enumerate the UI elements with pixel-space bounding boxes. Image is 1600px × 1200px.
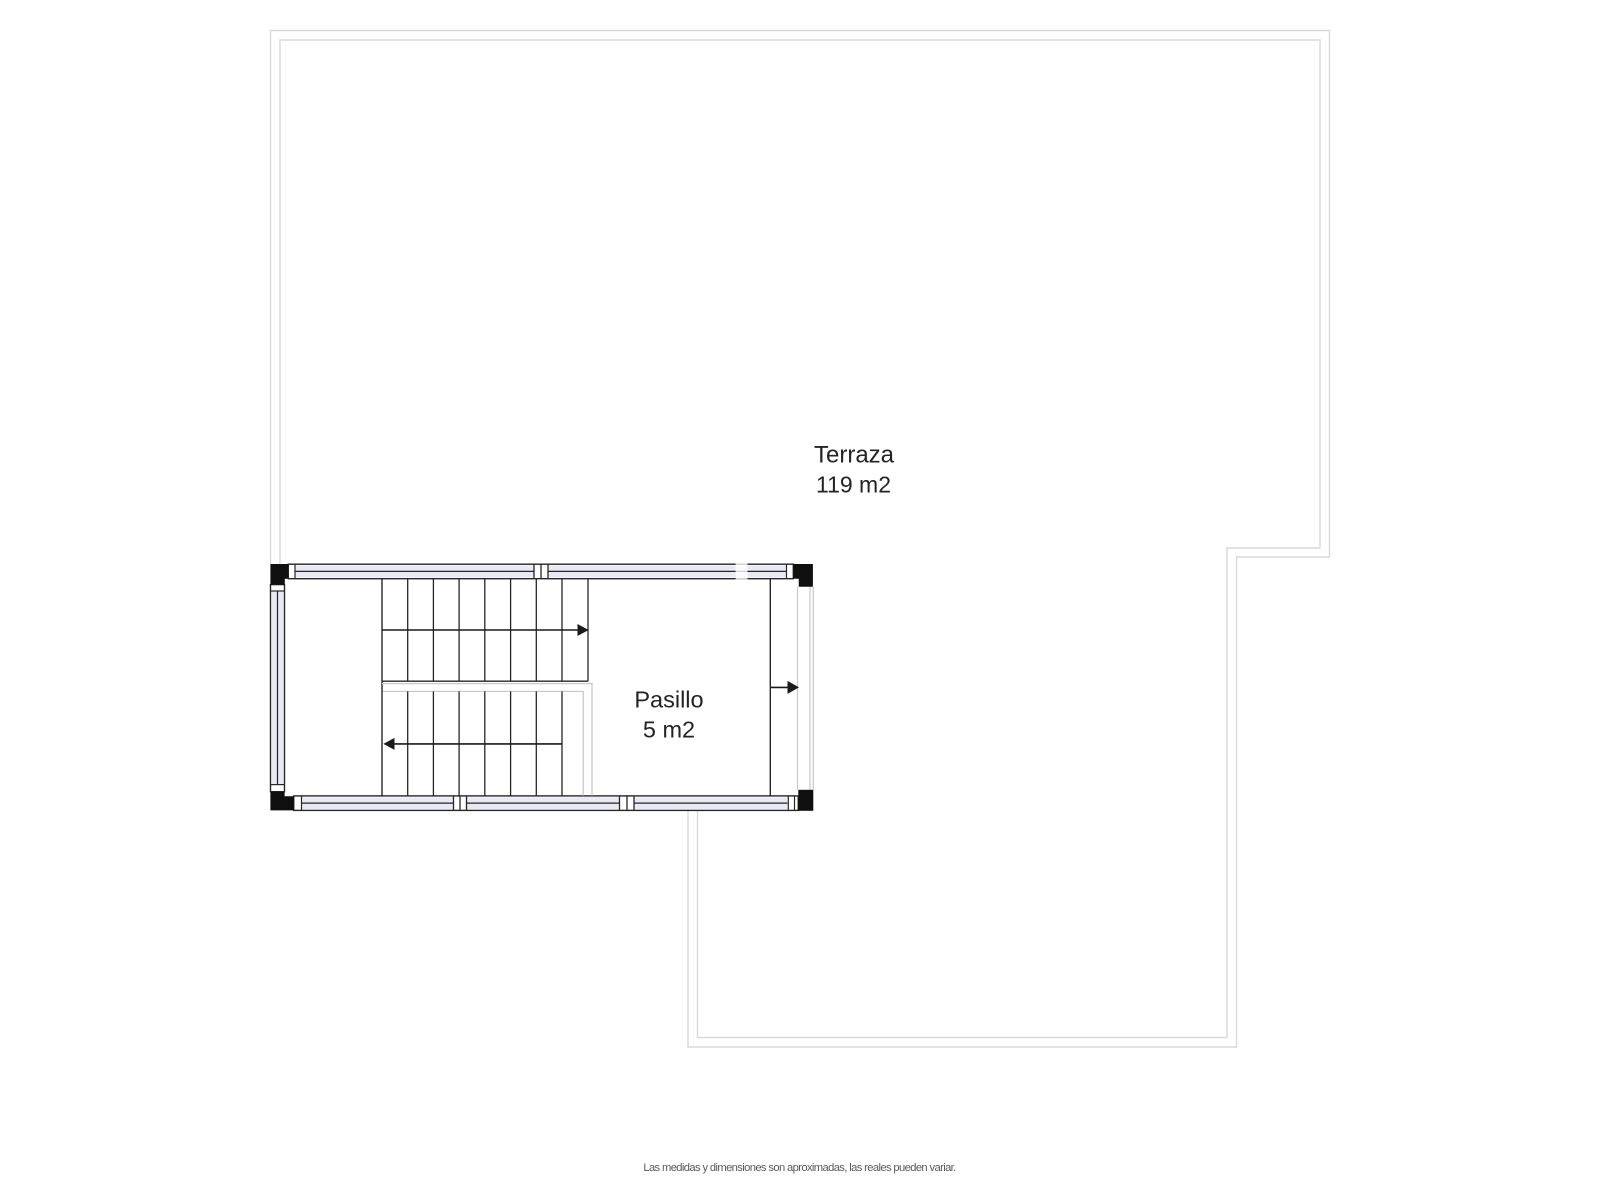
svg-text:119 m2: 119 m2 [816,472,891,498]
svg-text:Pasillo: Pasillo [634,687,703,713]
svg-text:Terraza: Terraza [814,442,895,469]
svg-text:5 m2: 5 m2 [643,717,695,743]
svg-text:Las medidas y dimensiones son: Las medidas y dimensiones son aproximada… [643,1162,956,1174]
